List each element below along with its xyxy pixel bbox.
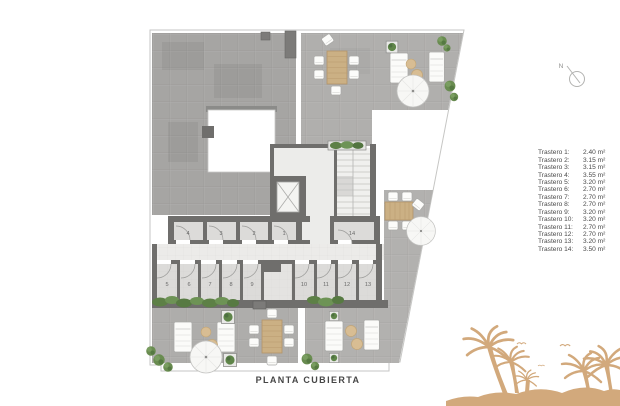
- legend-row-6: Trastero 6:2.70 m²: [538, 186, 614, 193]
- legend-area: 2.70 m²: [583, 201, 605, 208]
- bush: [302, 354, 313, 365]
- parasol: [407, 217, 436, 246]
- parasol: [397, 75, 429, 107]
- legend-label: Trastero 5:: [538, 179, 583, 186]
- planter: [222, 311, 235, 324]
- legend-area: 3.20 m²: [583, 238, 605, 245]
- chair: [284, 325, 294, 334]
- pouf: [201, 327, 211, 337]
- pouf: [352, 339, 363, 350]
- legend-label: Trastero 9:: [538, 209, 583, 216]
- chair: [331, 86, 341, 95]
- chair: [249, 325, 259, 334]
- legend-label: Trastero 8:: [538, 201, 583, 208]
- bush: [153, 354, 164, 365]
- legend-row-5: Trastero 5:3.20 m²: [538, 179, 614, 186]
- legend-area: 3.20 m²: [583, 216, 605, 223]
- chair: [249, 338, 259, 347]
- planter: [224, 354, 237, 367]
- planter: [329, 311, 338, 320]
- legend-area: 3.20 m²: [583, 209, 605, 216]
- legend-row-8: Trastero 8:2.70 m²: [538, 201, 614, 208]
- stair-planter: [328, 141, 366, 150]
- planter: [329, 353, 338, 362]
- legend-row-4: Trastero 4:3.55 m²: [538, 171, 614, 178]
- legend-row-14: Trastero 14:3.50 m²: [538, 246, 614, 253]
- bird-icon: [517, 343, 526, 344]
- legend-label: Trastero 2:: [538, 157, 583, 164]
- legend-label: Trastero 3:: [538, 164, 583, 171]
- legend-area: 3.50 m²: [583, 246, 605, 253]
- room-label-1: 1: [282, 231, 285, 237]
- legend-area: 2.70 m²: [583, 186, 605, 193]
- legend-row-9: Trastero 9:3.20 m²: [538, 209, 614, 216]
- room-label-10: 10: [301, 282, 307, 288]
- room-label-11: 11: [323, 282, 329, 288]
- room-label-7: 7: [208, 282, 211, 288]
- room-label-6: 6: [187, 282, 190, 288]
- palm-decoration: [446, 326, 620, 406]
- bush: [311, 362, 319, 370]
- legend-row-7: Trastero 7:2.70 m²: [538, 194, 614, 201]
- north-label: N: [559, 63, 564, 70]
- room-label-14: 14: [349, 231, 355, 237]
- pouf: [406, 59, 416, 69]
- sun-lounger: [174, 322, 192, 352]
- legend: Trastero 1:2.40 m² Trastero 2:3.15 m² Tr…: [538, 149, 614, 253]
- legend-area: 3.15 m²: [583, 164, 605, 171]
- room-label-13: 13: [365, 282, 371, 288]
- dining-table: [327, 51, 347, 84]
- bird-icon: [538, 365, 545, 366]
- room-label-8: 8: [229, 282, 232, 288]
- legend-label: Trastero 6:: [538, 186, 583, 193]
- chair: [267, 309, 277, 318]
- legend-row-11: Trastero 11:2.70 m²: [538, 223, 614, 230]
- legend-area: 3.20 m²: [583, 179, 605, 186]
- palm-fronds: [464, 326, 620, 386]
- legend-row-2: Trastero 2:3.15 m²: [538, 156, 614, 163]
- chair: [388, 192, 398, 201]
- bird-icon: [560, 345, 570, 346]
- bush: [443, 44, 450, 51]
- legend-row-1: Trastero 1:2.40 m²: [538, 149, 614, 156]
- legend-area: 2.70 m²: [583, 231, 605, 238]
- pouf: [346, 326, 357, 337]
- legend-label: Trastero 13:: [538, 238, 583, 245]
- dining-table: [385, 202, 413, 220]
- legend-area: 3.15 m²: [583, 157, 605, 164]
- legend-label: Trastero 12:: [538, 231, 583, 238]
- legend-label: Trastero 11:: [538, 224, 583, 231]
- legend-label: Trastero 4:: [538, 172, 583, 179]
- sun-lounger: [325, 321, 343, 351]
- legend-label: Trastero 7:: [538, 194, 583, 201]
- chair: [349, 56, 359, 65]
- legend-label: Trastero 10:: [538, 216, 583, 223]
- plan-title: PLANTA CUBIERTA: [150, 375, 466, 385]
- legend-label: Trastero 14:: [538, 246, 583, 253]
- bush: [437, 36, 447, 46]
- chair: [314, 56, 324, 65]
- room-label-2: 2: [252, 231, 255, 237]
- parasol: [190, 341, 222, 373]
- planter: [386, 41, 398, 53]
- legend-row-10: Trastero 10:3.20 m²: [538, 216, 614, 223]
- sun-lounger: [429, 52, 444, 82]
- sun-lounger: [364, 320, 379, 350]
- room-label-9: 9: [250, 282, 253, 288]
- legend-area: 2.40 m²: [583, 149, 605, 156]
- north-arrow-icon: N: [559, 63, 585, 87]
- floor-plan-page: 1 2 3 4 5 6 7 8 9 10 11 12 13 14: [0, 0, 620, 406]
- chair: [388, 221, 398, 230]
- chair: [349, 70, 359, 79]
- chair: [284, 338, 294, 347]
- roof-void: [202, 106, 277, 172]
- legend-area: 2.70 m²: [583, 194, 605, 201]
- bush: [450, 93, 458, 101]
- chair: [402, 192, 412, 201]
- dining-table: [262, 320, 282, 353]
- legend-area: 3.55 m²: [583, 172, 605, 179]
- chair: [267, 356, 277, 365]
- legend-area: 2.70 m²: [583, 224, 605, 231]
- legend-row-13: Trastero 13:3.20 m²: [538, 238, 614, 245]
- legend-label: Trastero 1:: [538, 149, 583, 156]
- legend-row-3: Trastero 3:3.15 m²: [538, 164, 614, 171]
- sun-lounger: [217, 322, 235, 352]
- bush: [146, 346, 156, 356]
- room-label-5: 5: [165, 282, 168, 288]
- room-label-3: 3: [219, 231, 222, 237]
- bush: [163, 362, 173, 372]
- room-label-4: 4: [186, 231, 189, 237]
- elevator: [277, 182, 299, 212]
- room-label-12: 12: [344, 282, 350, 288]
- floor-plan-svg: 1 2 3 4 5 6 7 8 9 10 11 12 13 14: [0, 0, 620, 406]
- legend-row-12: Trastero 12:2.70 m²: [538, 231, 614, 238]
- chair: [314, 70, 324, 79]
- bush: [445, 81, 456, 92]
